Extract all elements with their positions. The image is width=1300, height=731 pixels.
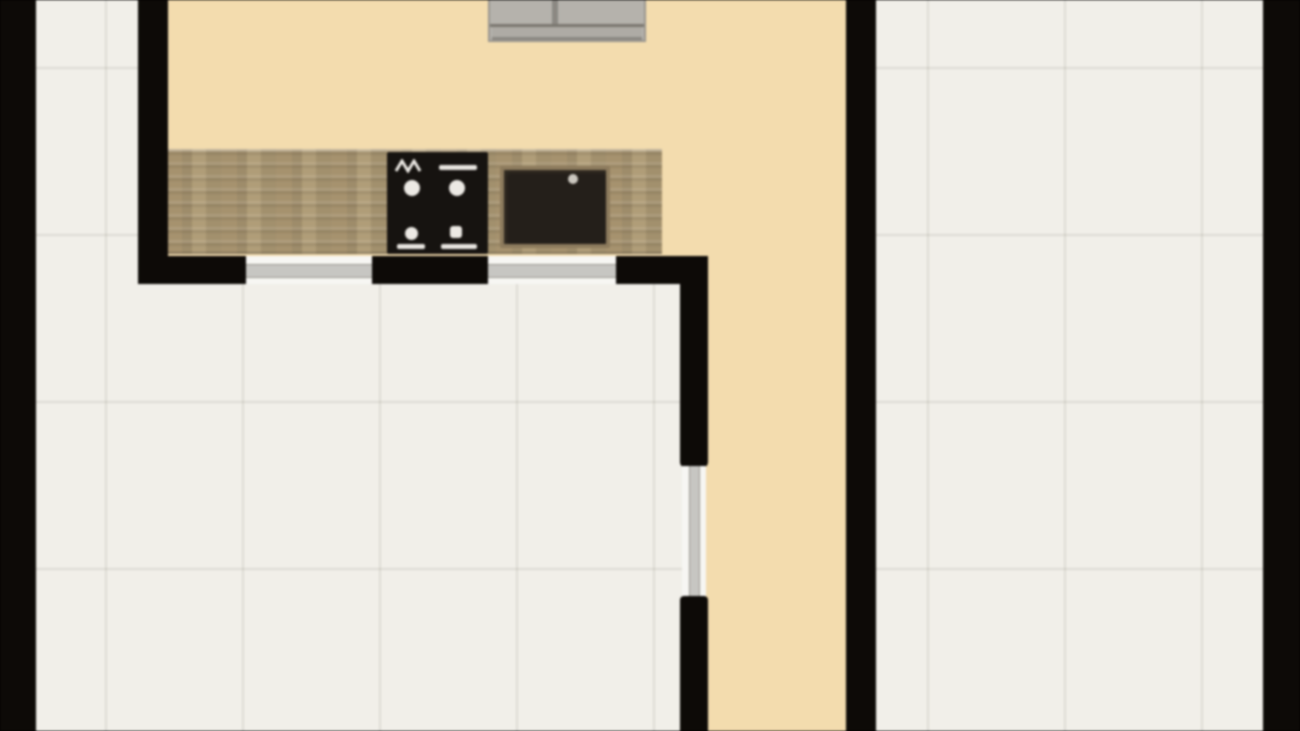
stove-bottom-mark — [397, 244, 425, 249]
furniture-front-panel — [492, 27, 642, 40]
stove — [387, 152, 488, 254]
sink-basin — [504, 170, 606, 244]
window-1 — [246, 256, 372, 284]
sink — [500, 166, 610, 248]
outer-wall-left — [0, 0, 36, 731]
burner-icon — [450, 226, 462, 238]
interior-wall-upper — [680, 256, 708, 468]
window-2 — [488, 256, 618, 284]
window-glass — [689, 466, 700, 598]
floor-plan — [0, 0, 1300, 731]
interior-wall-lower — [680, 596, 708, 731]
furniture-divider — [552, 0, 558, 24]
window-glass — [246, 264, 372, 278]
stove-top-line — [439, 165, 477, 170]
window-3 — [682, 466, 706, 598]
faucet-icon — [568, 174, 578, 184]
kitchen-wall-left — [138, 0, 168, 284]
burner-icon — [404, 180, 420, 196]
stove-zigzag-icon — [394, 159, 428, 173]
kitchen-wall-bottom-left-segment — [138, 256, 246, 284]
hallway-floor — [704, 0, 848, 731]
kitchen-wall-bottom-middle-segment — [372, 256, 488, 284]
window-glass — [488, 264, 618, 278]
stove-bottom-line — [441, 244, 477, 249]
outer-wall-right — [1263, 0, 1300, 731]
kitchen-wall-right — [846, 0, 876, 731]
burner-icon — [405, 227, 418, 240]
burner-icon — [449, 180, 465, 196]
furniture-top — [488, 0, 646, 42]
